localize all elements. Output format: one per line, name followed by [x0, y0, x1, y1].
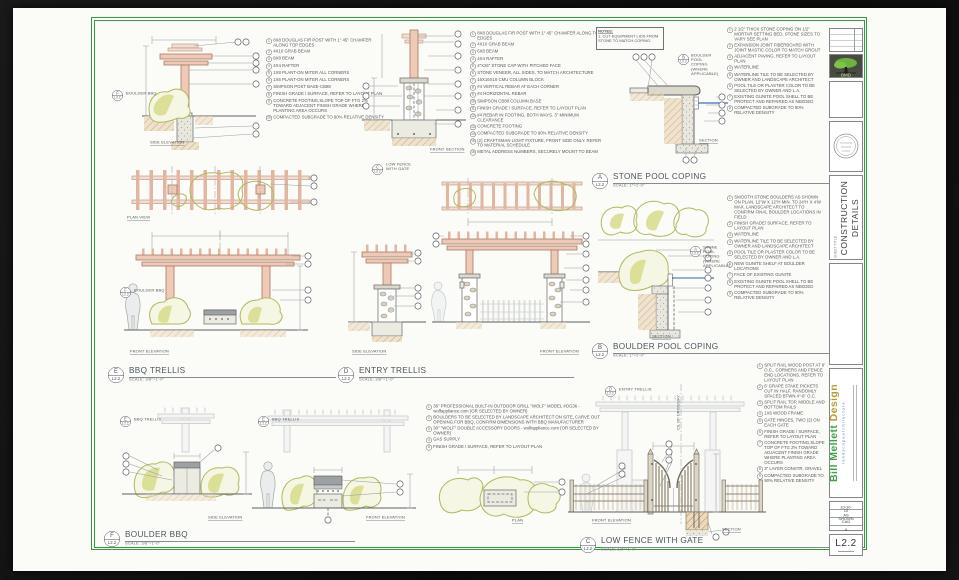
keynote-number: 9	[470, 92, 476, 98]
keynote-number: 10	[266, 115, 272, 121]
keynote-number: 6	[727, 84, 733, 90]
keynote-text: STONE VENEER, ALL SIDES, TO MATCH ARCHIT…	[477, 70, 606, 76]
keynote-number: 4	[470, 57, 476, 63]
sheet-number-box: L2.2	[829, 534, 863, 556]
keynote-item: 4WATERLINE	[727, 65, 823, 71]
boulder-bbq-plan-drawing	[424, 462, 574, 536]
keynote-item: 9#4 HORIZONTAL REBAR	[470, 92, 606, 98]
plan-view-label: PLAN VIEW	[127, 215, 150, 221]
boulder-pool-coping-section-drawing	[596, 242, 718, 342]
keynote-number: 5	[757, 418, 763, 424]
keynote-text: POOL TILE OR PLASTER COLOR TO BE SELECTE…	[734, 250, 823, 260]
keynote-number: 7	[757, 441, 763, 447]
boulder-sketch-drawing	[590, 188, 720, 246]
keynote-number: 5	[727, 73, 733, 79]
keynote-number: 1	[266, 38, 272, 44]
keynote-number: 3	[426, 426, 432, 432]
brand-name-2: Design	[828, 384, 840, 421]
detail-marker: BL2.2	[592, 343, 608, 359]
keynote-number: 1	[727, 195, 733, 201]
entry-trellis-front-elevation-drawing	[430, 178, 596, 356]
bbq-trellis-plan-view-drawing	[120, 164, 322, 218]
detail-marker: FL2.2	[104, 531, 120, 547]
keynote-number: 2	[426, 415, 432, 421]
revision-table	[829, 28, 863, 52]
keynote-number: 6	[757, 430, 763, 436]
firm-logo: BMD	[829, 54, 863, 78]
keynote-text: COMPACTED SUBGRADE TO 90% RELATIVE DENSI…	[764, 473, 827, 483]
contact-line	[856, 385, 857, 481]
keynote-callout-circles	[235, 39, 259, 137]
keynote-text: COMPACTED SUBGRADE TO 90% RELATIVE DENSI…	[734, 291, 823, 301]
keynote-text: ADJACENT PAVING, REFER TO LAYOUT PLAN	[734, 54, 823, 64]
detail-scale: SCALE: 1/2"=1'-0"	[601, 547, 636, 552]
sheet-title-line2: DETAILS	[850, 199, 860, 237]
keynote-number: 11	[470, 106, 476, 112]
keynote-number: 8	[757, 467, 763, 473]
keynote-number: 2	[727, 221, 733, 227]
keynote-number: 7	[727, 273, 733, 279]
keynote-number: 6	[727, 262, 733, 268]
photo-frame: SIDE ELEVATION FL2.2 BOULDER BBQ 18X8 DO…	[0, 0, 959, 580]
info-row-drawn: CAD	[830, 518, 862, 526]
keynote-number: 1	[727, 27, 733, 33]
keynote-number: 2	[727, 43, 733, 49]
keynote-text: (2) CRAFTSMAN LIGHT FIXTURE, FRONT SIDE …	[477, 138, 606, 148]
keynote-text: 2 1/2" THICK STONE COPING ON 1/2" MORTAR…	[734, 27, 823, 42]
keynote-text: CONCRETE FOOTING	[477, 124, 606, 130]
keynote-item: 12#4 REBAR IN FOOTING, BOTH WAYS. 3" MIN…	[470, 113, 606, 123]
keynote-item: 24X10 GRAB BEAM	[470, 42, 606, 48]
ref-label: BBQ TRELLIS	[272, 417, 299, 422]
boulder-pool-coping-keynotes: 1SMOOTH STONE BOULDERS AS SHOWN ON PLAN.…	[727, 195, 823, 302]
low-fence-gate-drawing	[566, 382, 782, 550]
keynote-item: 16METAL ADDRESS NUMBERS, SECURELY MOUNT …	[470, 149, 606, 155]
keynote-number: 1	[426, 404, 432, 410]
keynote-text: 6X8 BEAM	[477, 49, 606, 55]
keynote-number: 5	[266, 71, 272, 77]
keynote-number: 3	[727, 54, 733, 60]
keynote-number: 8	[727, 280, 733, 286]
keynote-text: 1X6 WOOD FRAME	[764, 411, 827, 417]
keynote-text: NEW GUNITE SHELF AT BOULDER LOCATIONS	[734, 261, 823, 271]
keynote-text: #4 VERTICAL REBAR AT EACH CORNER	[477, 85, 606, 91]
keynote-number: 6	[470, 71, 476, 77]
keynote-text: 4X10 GRAB BEAM	[477, 42, 606, 48]
sheet-number: L2.2	[830, 535, 862, 549]
keynote-item: 6FINISH GRADE / SURFACE, REFER TO LAYOUT…	[757, 429, 827, 439]
consultant-box	[829, 263, 863, 365]
keynote-number: 9	[757, 474, 763, 480]
ref-label: STONE POOL COPING (WHERE APPLICABLE)	[703, 245, 729, 268]
section-label: SECTION	[699, 138, 718, 144]
keynote-item: 7FACE OF EXISTING GUNITE	[727, 272, 823, 278]
keynote-item: 6STONE VENEER, ALL SIDES, TO MATCH ARCHI…	[470, 70, 606, 76]
ref-label: BOULDER POOL COPING (WHERE APPLICABLE)	[691, 53, 720, 76]
keynote-item: 44X4 RAFTER	[470, 56, 606, 62]
keynote-item: 4WATERLINE TILE TO BE SELECTED BY OWNER …	[727, 239, 823, 249]
keynote-number: 7	[727, 95, 733, 101]
keynote-number: 16	[470, 150, 476, 156]
keynote-item: 8COMPACTED SUBGRADE TO 90% RELATIVE DENS…	[727, 105, 823, 115]
keynote-number: 1	[470, 31, 476, 37]
notes-box-body: 1. CUT EQUIPMENT LIDS FROM STONE TO MATC…	[598, 34, 658, 43]
keynote-number: 13	[470, 124, 476, 130]
sheet-number-underline	[838, 551, 854, 552]
detail-scale: SCALE: 3/8"=1'-0"	[359, 377, 394, 382]
keynote-text: #4 HORIZONTAL REBAR	[477, 92, 606, 98]
bbq-trellis-side-elevation-drawing	[138, 30, 270, 154]
stone-pool-coping-keynotes: 12 1/2" THICK STONE COPING ON 1/2" MORTA…	[727, 27, 823, 117]
keynote-text: FINISH GRADE / SURFACE, REFER TO LAYOUT …	[477, 106, 606, 112]
ref-marker-boulder-bbq: FL2.2	[112, 90, 123, 101]
keynote-item: 2FINISH GRADE/ SURFACE, REFER TO LAYOUT …	[727, 221, 823, 231]
keynote-number: 8	[470, 85, 476, 91]
brand-name: Bill Mellett	[828, 425, 840, 482]
keynote-item: 716X16X16 CMU COLUMN BLOCK	[470, 78, 606, 84]
keynote-text: FINISH GRADE/ SURFACE, REFER TO LAYOUT P…	[734, 221, 823, 231]
keynote-number: 4	[757, 411, 763, 417]
keynote-item: 18X8 DOUGLAS FIR POST WITH 1" 45° CHAMFE…	[470, 31, 606, 41]
keynote-item: 14COMPACTED SUBGRADE TO 90% RELATIVE DEN…	[470, 131, 606, 137]
keynote-number: 4	[426, 437, 432, 443]
keynote-text: WATERLINE	[734, 65, 823, 71]
keynote-text: 3" LAYER CONSTR. GRAVEL	[764, 466, 827, 472]
front-elevation-label: FRONT ELEVATION	[366, 515, 405, 521]
detail-title-text: BOULDER POOL COPING	[613, 342, 848, 354]
ref-label: BBQ TRELLIS	[134, 417, 161, 422]
keynote-number: 8	[266, 92, 272, 98]
keynote-number: 15	[470, 139, 476, 145]
side-elevation-label: SIDE ELEVATION	[352, 349, 386, 355]
keynote-text: WATERLINE TILE TO BE SELECTED BY OWNER A…	[734, 239, 823, 249]
general-notes-box: NOTES: 1. CUT EQUIPMENT LIDS FROM STONE …	[596, 27, 664, 50]
keynote-text: 4X4 RAFTER	[477, 56, 606, 62]
keynote-number: 2	[470, 42, 476, 48]
keynote-text: WATERLINE TILE TO BE SELECTED BY OWNER A…	[734, 72, 823, 82]
keynote-item: 2EXPANSION JOINT FIBERBOARD WITH JOINT M…	[727, 43, 823, 53]
sheet-info-table: 10-10-10 AS SHOWN CAD A	[829, 501, 863, 531]
keynote-item: 3ADJACENT PAVING, REFER TO LAYOUT PLAN	[727, 54, 823, 64]
keynote-item: 8#4 VERTICAL REBAR AT EACH CORNER	[470, 85, 606, 91]
keynote-text: 8X8 DOUGLAS FIR POST WITH 1" 45° CHAMFER…	[477, 31, 606, 41]
ref-marker-bbq-trellis-2: EL2.2	[258, 416, 269, 427]
side-elevation-label: SIDE ELEVATION	[208, 515, 242, 521]
keynote-text: SPLIT RAIL TOP, MIDDLE AND BOTTOM RAILS	[764, 400, 827, 410]
detail-title-text: STONE POOL COPING	[613, 172, 838, 184]
keynote-number: 9	[266, 99, 272, 105]
keynote-number: 4	[727, 239, 733, 245]
ref-label: BOULDER BBQ	[134, 288, 165, 293]
keynote-item: 41X6 WOOD FRAME	[757, 411, 827, 417]
entry-trellis-keynotes: 18X8 DOUGLAS FIR POST WITH 1" 45° CHAMFE…	[470, 31, 606, 156]
keynote-item: 12 1/2" THICK STONE COPING ON 1/2" MORTA…	[727, 27, 823, 42]
keynote-text: FACE OF EXISTING GUNITE	[734, 272, 823, 278]
ref-marker-low-fence: CL2.2	[372, 164, 383, 175]
ref-marker-boulder-bbq-2: FL2.2	[120, 287, 131, 298]
stamp-box	[829, 121, 863, 172]
keynote-text: 4"X26" STONE CAP WITH PITCHED FACE	[477, 63, 606, 69]
sheet-title-rotated: SHEET TITLE CONSTRUCTION DETAILS	[832, 178, 860, 258]
keynote-item: 7CONCRETE FOOTING,SLOPE TOP OF FTG 2% TO…	[757, 440, 827, 465]
keynote-number: 5	[470, 64, 476, 70]
detail-scale: SCALE: 1"=1'-0"	[613, 183, 645, 188]
keynote-item: 8EXISTING GUNITE POOL SHELL TO BE PROTEC…	[727, 279, 823, 289]
keynote-item: 5WATERLINE TILE TO BE SELECTED BY OWNER …	[727, 72, 823, 82]
keynote-number: 7	[266, 85, 272, 91]
keynote-number: 2	[266, 49, 272, 55]
ref-marker-bbq-trellis: EL2.2	[120, 416, 131, 427]
keynote-item: 9COMPACTED SUBGRADE TO 90% RELATIVE DENS…	[727, 291, 823, 301]
keynote-text: SIMPSON CB88 COLUMN BASE	[477, 99, 606, 105]
detail-marker: AL2.2	[592, 173, 608, 189]
keynote-number: 4	[727, 65, 733, 71]
keynote-text: 16X16X16 CMU COLUMN BLOCK	[477, 78, 606, 84]
project-info-box	[829, 81, 863, 118]
keynote-item: 83" LAYER CONSTR. GRAVEL	[757, 466, 827, 472]
keynote-number: 3	[757, 400, 763, 406]
keynote-item: 36X8 BEAM	[470, 49, 606, 55]
keynote-item: 1SMOOTH STONE BOULDERS AS SHOWN ON PLAN.…	[727, 195, 823, 220]
ref-label: ENTRY TRELLIS	[619, 387, 652, 392]
detail-scale: SCALE: 1"=1'-0"	[613, 353, 645, 358]
keynote-text: EXISTING GUNITE POOL SHELL TO BE PROTECT…	[734, 94, 823, 104]
keynote-text: GATE HINGES, TWO (2) ON EACH GATE	[764, 418, 827, 428]
keynote-item: 54"X26" STONE CAP WITH PITCHED FACE	[470, 63, 606, 69]
keynote-text: 6' GRAPE STAKE PICKETS CUT IN HALF, RAND…	[764, 384, 827, 399]
keynote-text: EXPANSION JOINT FIBERBOARD WITH JOINT MA…	[734, 43, 823, 53]
side-elevation-label: SIDE ELEVATION	[150, 140, 184, 146]
keynote-number: 5	[727, 250, 733, 256]
tree-logo-icon: BMD	[830, 55, 862, 77]
keynote-number: 8	[727, 106, 733, 112]
keynote-text: CONCRETE FOOTING,SLOPE TOP OF FTG 2% TOW…	[764, 440, 827, 465]
keynote-item: 6NEW GUNITE SHELF AT BOULDER LOCATIONS	[727, 261, 823, 271]
keynote-item: 11FINISH GRADE / SURFACE, REFER TO LAYOU…	[470, 106, 606, 112]
keynote-number: 3	[727, 232, 733, 238]
ref-label: LOW FENCE WITH GATE	[386, 162, 414, 171]
keynote-number: 4	[266, 64, 272, 70]
keynote-text: EXISTING GUNITE POOL SHELL TO BE PROTECT…	[734, 279, 823, 289]
front-section-label: FRONT SECTION	[430, 147, 465, 153]
front-elevation-label: FRONT ELEVATION	[130, 349, 169, 355]
keynote-item: 15(2) CRAFTSMAN LIGHT FIXTURE, FRONT SID…	[470, 138, 606, 148]
keynote-item: 3WATERLINE	[727, 232, 823, 238]
keynote-number: 2	[757, 384, 763, 390]
detail-marker: CL2.2	[580, 537, 596, 553]
low-fence-keynotes: 1SPLIT RAIL WOOD POST AT 8' O.C., CORNER…	[757, 363, 827, 485]
detail-marker: DL2.2	[338, 367, 354, 383]
keynote-text: FINISH GRADE / SURFACE, REFER TO LAYOUT …	[764, 429, 827, 439]
keynote-item: 3SPLIT RAIL TOP, MIDDLE AND BOTTOM RAILS	[757, 400, 827, 410]
logo-text: BMD	[841, 73, 852, 77]
info-row-date: 10-10-10	[830, 502, 862, 510]
keynote-number: 12	[470, 113, 476, 119]
entry-trellis-front-section-drawing	[358, 26, 470, 182]
detail-marker: EL2.2	[108, 367, 124, 383]
keynote-number: 3	[470, 49, 476, 55]
keynote-number: 6	[266, 78, 272, 84]
keynote-number: 3	[266, 56, 272, 62]
keynote-text: POOL TILE OR PLASTER COLOR TO BE SELECTE…	[734, 83, 823, 93]
front-elevation-label: FRONT ELEVATION	[592, 518, 631, 524]
keynote-item: 9COMPACTED SUBGRADE TO 90% RELATIVE DENS…	[757, 473, 827, 483]
section-label: SECTION	[722, 527, 741, 533]
keynote-number: 5	[426, 445, 432, 451]
keynote-number: 1	[757, 363, 763, 369]
license-stamp-icon	[830, 122, 862, 171]
plan-label: PLAN	[512, 518, 523, 524]
keynote-item: 6POOL TILE OR PLASTER COLOR TO BE SELECT…	[727, 83, 823, 93]
info-row-job: A	[830, 526, 862, 533]
keynote-number: 7	[470, 78, 476, 84]
keynote-item: 1SPLIT RAIL WOOD POST AT 8' O.C., CORNER…	[757, 363, 827, 383]
ref-marker-entry-trellis: DL2.2	[605, 386, 616, 397]
keynote-item: 5GATE HINGES, TWO (2) ON EACH GATE	[757, 418, 827, 428]
brand-tagline: l a n d s c a p e a r c h i t e c t u r …	[841, 402, 846, 465]
keynote-text: SPLIT RAIL WOOD POST AT 8' O.C., CORNERS…	[764, 363, 827, 383]
sheet-title-label: SHEET TITLE	[834, 218, 838, 258]
keynote-text: COMPACTED SUBGRADE TO 90% RELATIVE DENSI…	[734, 105, 823, 115]
section-label: SECTION	[652, 334, 671, 340]
contact-line	[853, 385, 854, 481]
keynote-text: METAL ADDRESS NUMBERS, SECURELY MOUNT TO…	[477, 149, 606, 155]
keynote-number: 10	[470, 99, 476, 105]
keynote-item: 10SIMPSON CB88 COLUMN BASE	[470, 99, 606, 105]
centerline-label: C/L OF DRIVEWAY	[676, 395, 681, 430]
keynote-text: COMPACTED SUBGRADE TO 90% RELATIVE DENSI…	[477, 131, 606, 137]
keynote-item: 13CONCRETE FOOTING	[470, 124, 606, 130]
detail-scale: SCALE: 3/8"=1'-0"	[129, 377, 164, 382]
ref-marker-boulder-pool-coping: BL2.2	[678, 54, 689, 65]
ref-label: BOULDER BBQ	[126, 91, 157, 96]
detail-scale: SCALE: 3/8"=1'-0"	[125, 541, 160, 546]
front-elevation-label: FRONT ELEVATION	[540, 349, 579, 355]
entry-trellis-side-elevation-drawing	[346, 230, 428, 352]
keynote-number: 9	[727, 291, 733, 297]
keynote-item: 5POOL TILE OR PLASTER COLOR TO BE SELECT…	[727, 250, 823, 260]
keynote-number: 14	[470, 131, 476, 137]
keynote-item: 7EXISTING GUNITE POOL SHELL TO BE PROTEC…	[727, 94, 823, 104]
keynote-item: 26' GRAPE STAKE PICKETS CUT IN HALF, RAN…	[757, 384, 827, 399]
keynote-text: WATERLINE	[734, 232, 823, 238]
keynote-text: #4 REBAR IN FOOTING, BOTH WAYS. 3" MINIM…	[477, 113, 606, 123]
firm-name-rotated: Bill Mellett Design l a n d s c a p e a …	[828, 370, 864, 496]
sheet-title-line1: CONSTRUCTION	[839, 181, 849, 255]
keynote-text: SMOOTH STONE BOULDERS AS SHOWN ON PLAN. …	[734, 195, 823, 220]
ref-marker-stone-pool-coping: AL2.2	[690, 246, 701, 257]
